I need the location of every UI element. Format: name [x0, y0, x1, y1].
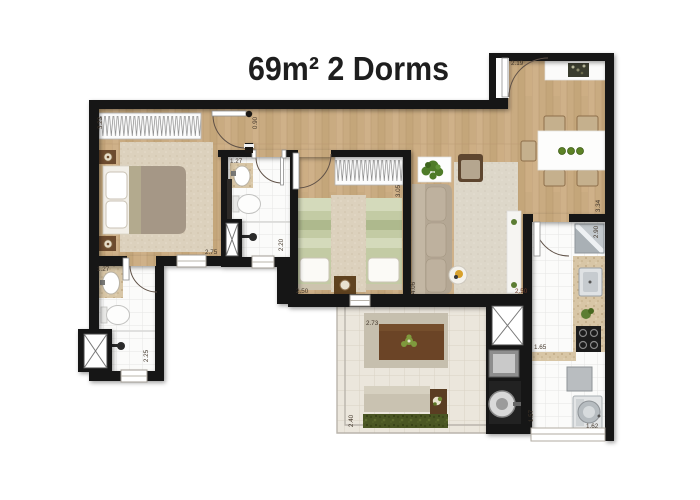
svg-text:1.57: 1.57: [528, 409, 535, 422]
svg-text:2.40: 2.40: [348, 414, 355, 427]
svg-text:2.75: 2.75: [205, 249, 218, 256]
svg-text:2.50: 2.50: [296, 288, 309, 295]
svg-text:2.20: 2.20: [278, 238, 285, 251]
svg-text:2.19: 2.19: [511, 60, 524, 67]
svg-text:1.65: 1.65: [534, 344, 547, 351]
svg-text:2.50: 2.50: [515, 288, 528, 295]
svg-text:0.90: 0.90: [252, 116, 259, 129]
svg-text:2.90: 2.90: [593, 225, 600, 238]
svg-text:1.27: 1.27: [230, 158, 243, 165]
svg-text:3.05: 3.05: [395, 184, 402, 197]
svg-text:4.06: 4.06: [410, 281, 417, 294]
svg-text:3.23: 3.23: [97, 116, 104, 129]
svg-text:2.73: 2.73: [366, 320, 379, 327]
svg-text:1.27: 1.27: [97, 266, 110, 273]
svg-text:69m² 2 Dorms: 69m² 2 Dorms: [248, 50, 449, 87]
svg-text:2.25: 2.25: [143, 349, 150, 362]
svg-text:1.62: 1.62: [586, 423, 599, 430]
svg-text:3.34: 3.34: [595, 199, 602, 212]
